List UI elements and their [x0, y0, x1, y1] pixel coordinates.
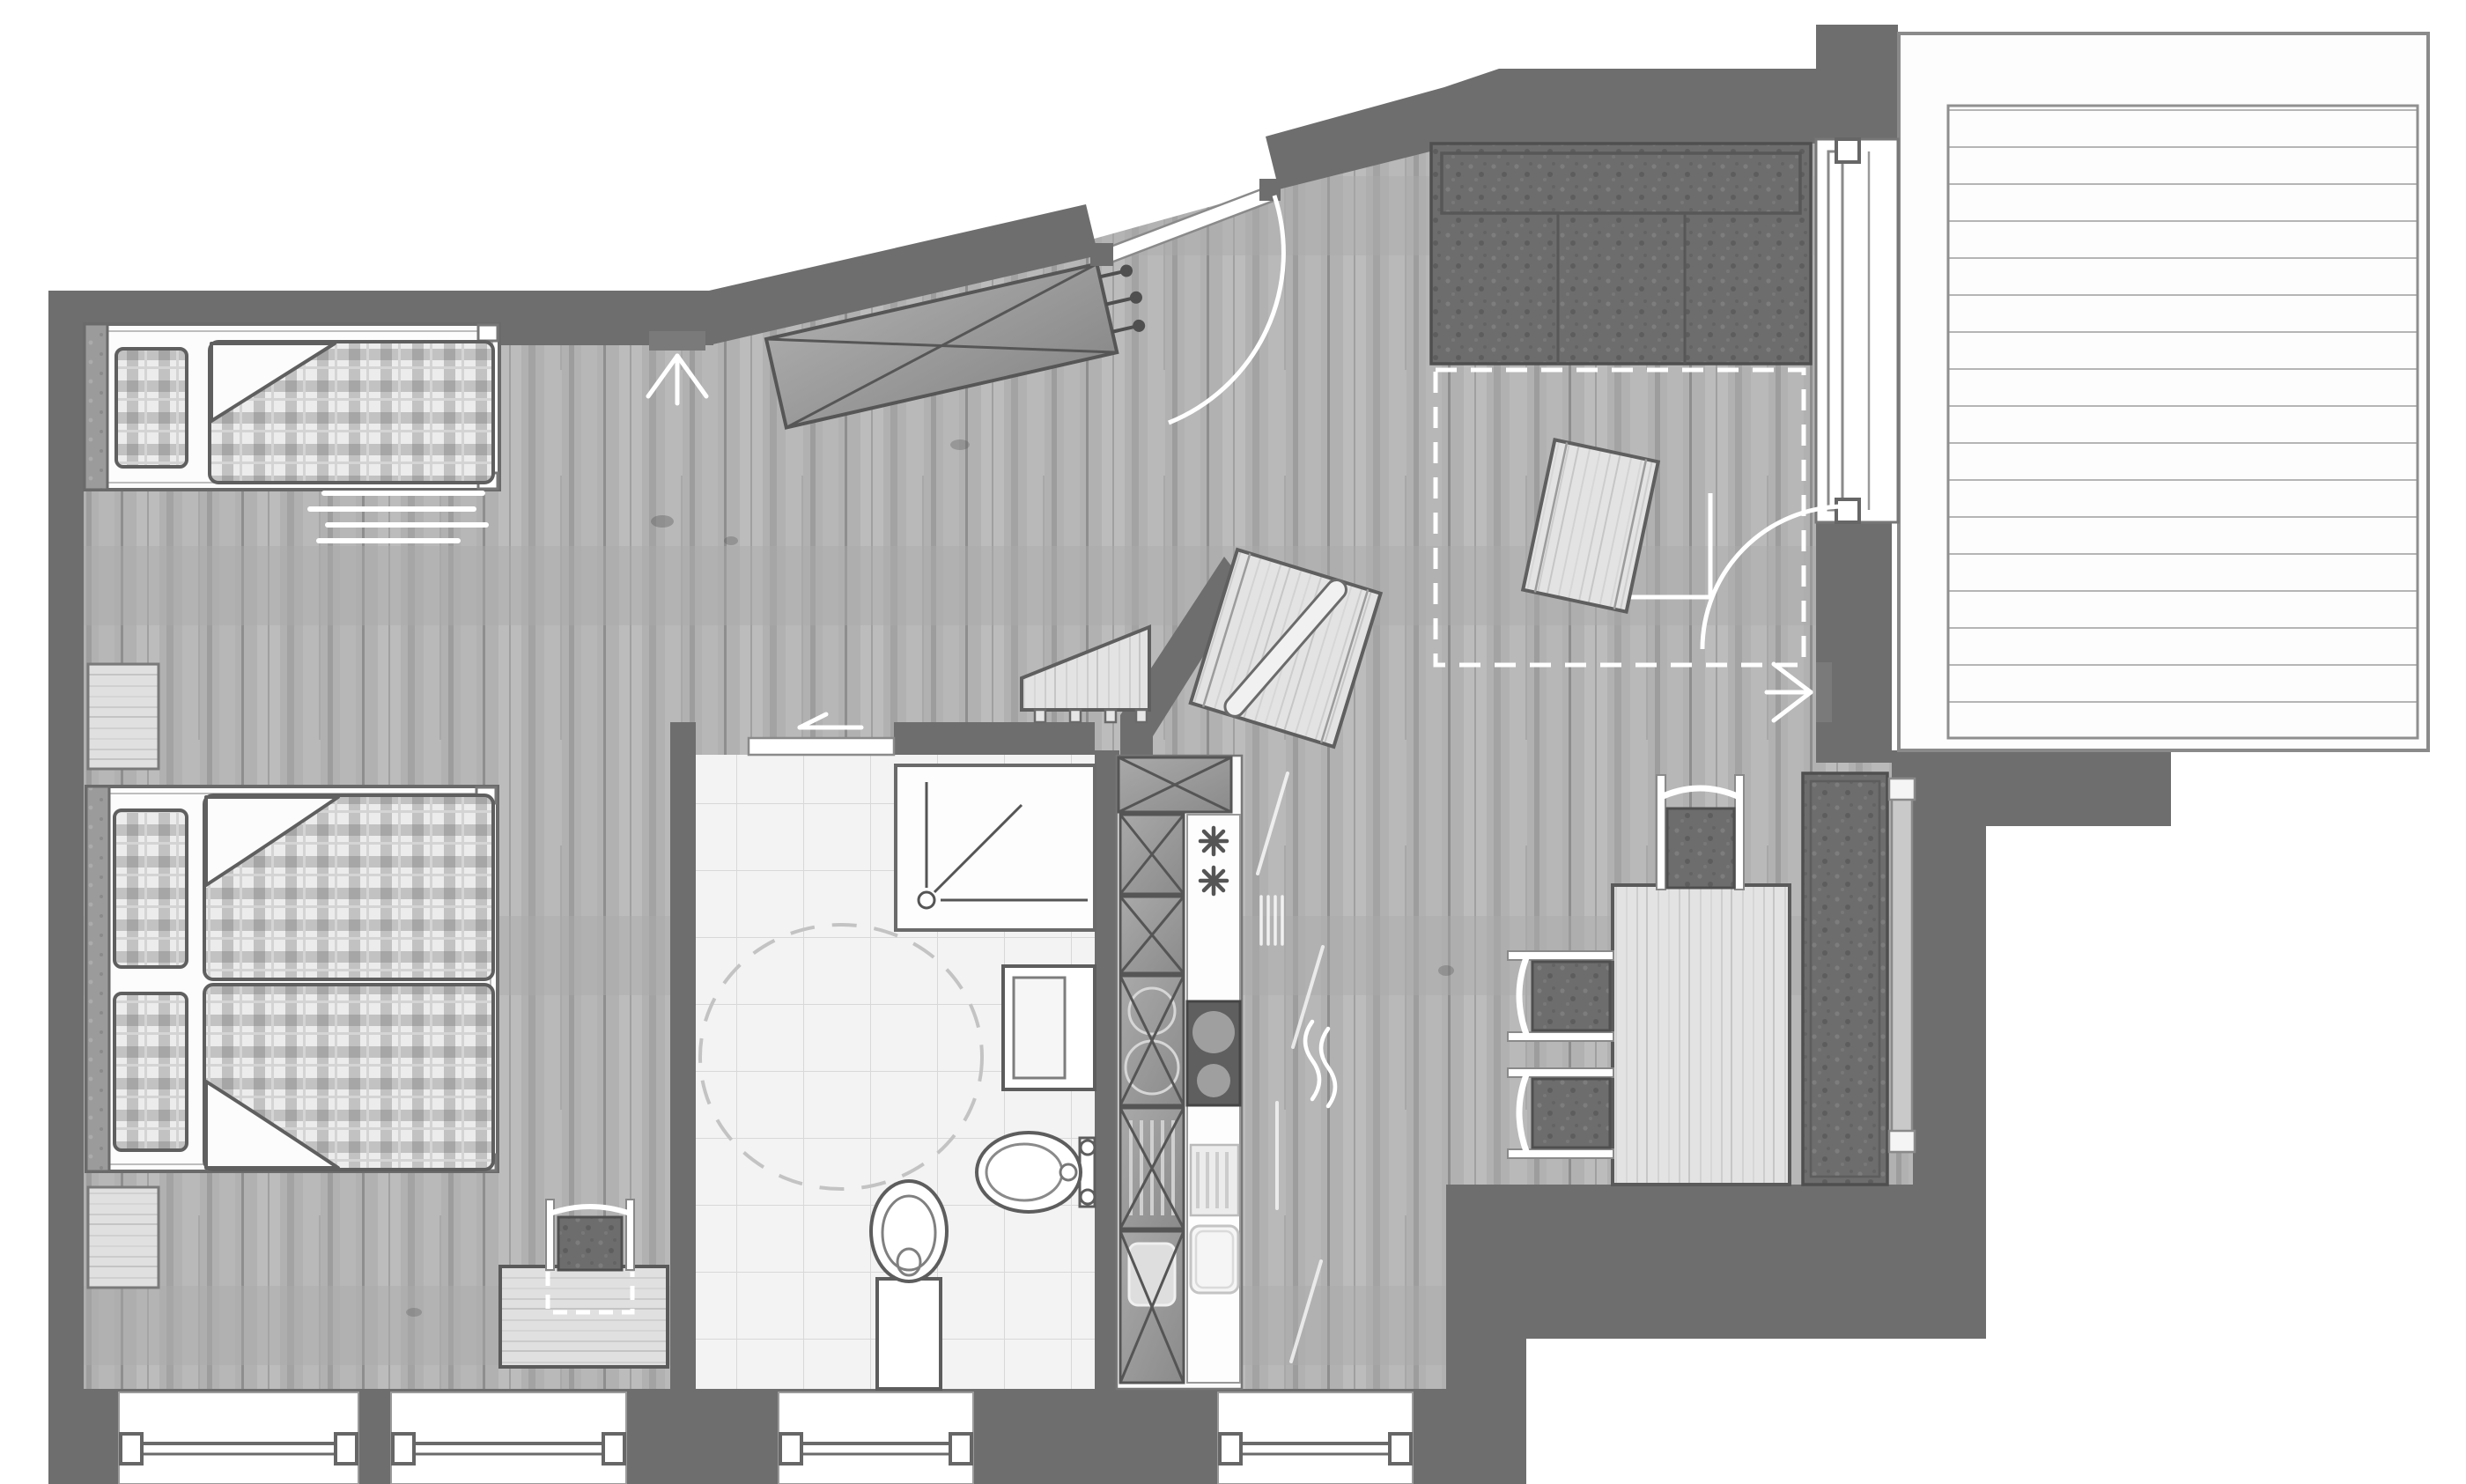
dishwasher-front — [1191, 1145, 1238, 1215]
double-bed — [86, 786, 498, 1171]
double-bed-duvet-1 — [204, 795, 493, 979]
wall-left — [48, 291, 84, 1484]
kitchen-cabinet-dishwasher — [1120, 1108, 1184, 1229]
desk — [500, 1266, 668, 1367]
single-bed — [85, 324, 499, 490]
wall-bathroom-left — [670, 722, 696, 1389]
floor-plan-svg — [0, 0, 2466, 1484]
single-bed-pillow — [116, 349, 187, 467]
double-bed-pillow-2 — [114, 993, 187, 1150]
kitchen-cabinet-cooktop — [1120, 976, 1184, 1105]
double-bed-pillow-1 — [114, 810, 187, 967]
window-3 — [779, 1392, 973, 1484]
dining-table — [1613, 885, 1790, 1185]
floor-plan-canvas — [0, 0, 2466, 1484]
kitchen-tall-cabinets — [1120, 815, 1184, 1383]
kitchen-cabinet-sink — [1120, 1231, 1184, 1383]
window-2 — [391, 1392, 626, 1484]
balcony-deck — [1948, 106, 2418, 738]
nightstand-upper — [88, 664, 159, 769]
wall-bathroom-top — [894, 722, 1095, 755]
single-bed-duvet — [210, 342, 493, 483]
balcony-door-unit — [1816, 139, 1898, 522]
radiator — [1889, 779, 1915, 1152]
kitchen-counter — [1187, 815, 1240, 1383]
wall-balcony-block-mid — [1816, 522, 1892, 763]
sofa — [1431, 144, 1811, 364]
entrance-door-jamb-left — [1090, 243, 1113, 266]
bathroom — [696, 714, 1095, 1389]
window-1 — [119, 1392, 358, 1484]
kitchenette — [1117, 756, 1242, 1389]
window-bench — [1803, 773, 1887, 1185]
wall-under-balcony — [1892, 750, 2171, 826]
wall-mass-bottom-right — [1446, 1185, 1986, 1389]
kitchen-cabinet-top — [1119, 757, 1231, 812]
window-4 — [1218, 1392, 1413, 1484]
nightstand-lower — [88, 1187, 159, 1288]
wall-balcony-block-top — [1816, 25, 1898, 139]
shower — [896, 765, 1095, 930]
washbasin — [1003, 966, 1095, 1089]
cooktop-hob — [1187, 1001, 1240, 1105]
single-bed-headboard — [85, 324, 107, 490]
double-bed-duvet-2 — [204, 985, 493, 1170]
entrance-door-jamb-right — [1259, 179, 1281, 201]
toilet — [871, 1181, 947, 1389]
kitchen-sink — [1191, 1226, 1238, 1293]
double-bed-headboard — [86, 786, 109, 1171]
